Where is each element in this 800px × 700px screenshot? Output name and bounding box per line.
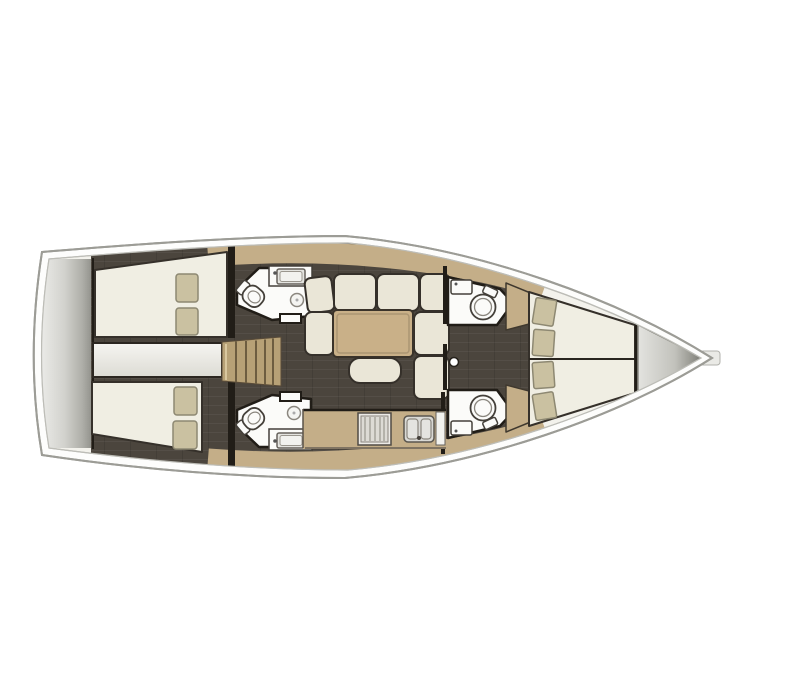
bulkhead (228, 246, 235, 338)
pillow (174, 387, 197, 415)
bulkhead (443, 266, 447, 324)
mast-post (450, 358, 459, 367)
drain-dot (296, 299, 299, 302)
floor-plan-canvas (0, 0, 800, 700)
faucet (455, 430, 458, 433)
sink (451, 280, 472, 294)
galley-sink (404, 416, 434, 442)
yacht-floor-plan (0, 0, 800, 700)
pillow (176, 274, 198, 302)
faucet (273, 271, 277, 275)
settee-cushion (305, 312, 334, 355)
settee-cushion (377, 274, 419, 311)
ottoman (349, 358, 401, 383)
pillow (532, 392, 557, 421)
sink-basin (280, 272, 302, 282)
galley-worktop (436, 412, 445, 445)
sink (451, 421, 472, 435)
pillow (176, 308, 198, 335)
entry-step (280, 314, 301, 323)
pillow (532, 329, 555, 356)
galley-stove (358, 413, 391, 445)
pillow (532, 297, 557, 326)
bulkhead (443, 344, 447, 390)
faucet (417, 436, 421, 440)
galley (303, 409, 446, 449)
engine-compartment (93, 343, 222, 377)
settee-cushion (304, 276, 335, 314)
companionway-steps (222, 337, 281, 386)
faucet (273, 439, 277, 443)
sink-basin (280, 436, 302, 446)
settee-cushion (334, 274, 376, 311)
bulkhead (228, 377, 235, 467)
pillow (173, 421, 197, 449)
faucet (455, 283, 458, 286)
pillow (532, 361, 555, 388)
entry-step (280, 392, 301, 401)
drain-dot (293, 412, 296, 415)
swim-platform (42, 259, 94, 448)
saloon-table (333, 310, 413, 357)
